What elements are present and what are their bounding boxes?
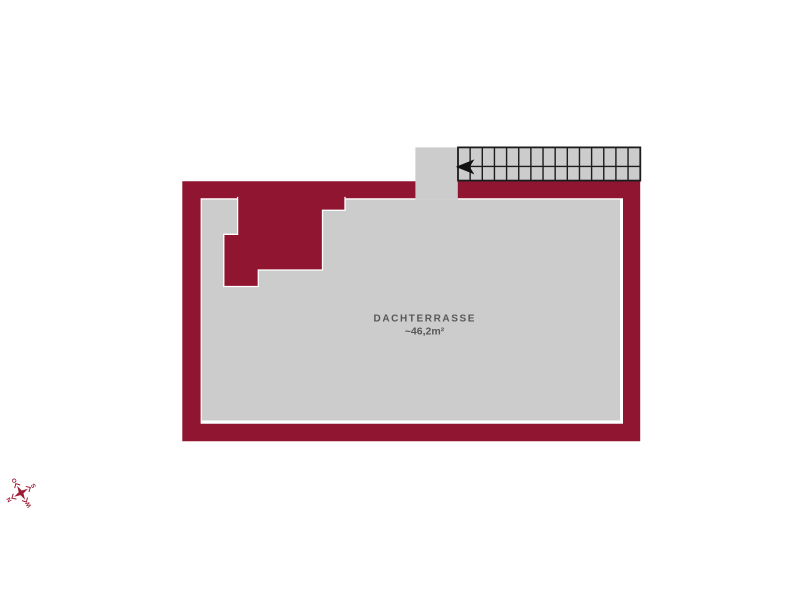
svg-text:~46,2m²: ~46,2m² xyxy=(405,325,445,337)
svg-text:DACHTERRASSE: DACHTERRASSE xyxy=(374,314,477,325)
